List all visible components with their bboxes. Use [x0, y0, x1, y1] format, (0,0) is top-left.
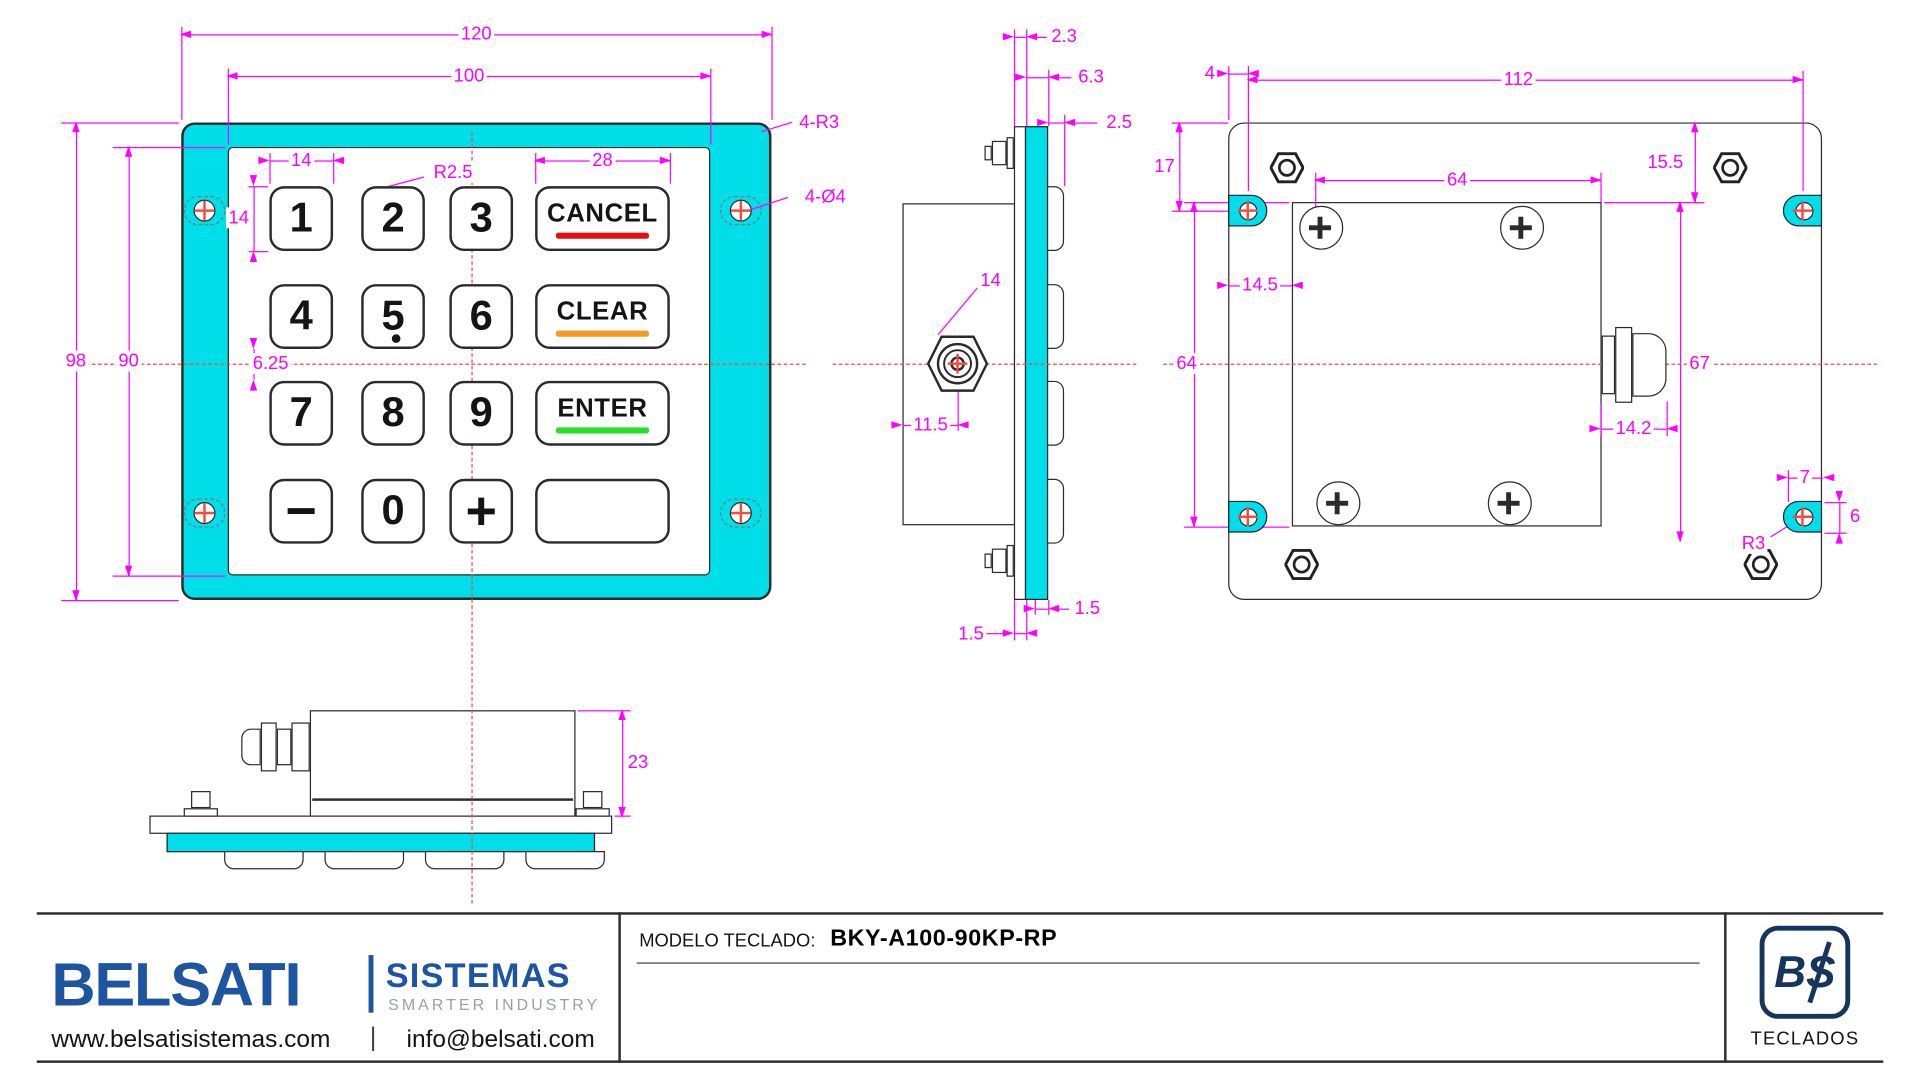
bs-logo-caption: TECLADOS: [1744, 1029, 1866, 1050]
key-3: 3: [449, 186, 513, 251]
tactile-dot: [392, 334, 401, 343]
dim-line: [1014, 633, 1026, 634]
key-label: 9: [470, 389, 493, 437]
gland-centermark: [948, 354, 968, 374]
enclosure-flange-line: [312, 798, 573, 800]
dim-label-key-protrusion: 2.5: [1104, 112, 1134, 133]
dim-label-slot-inset: 4: [1202, 63, 1217, 84]
drawing-canvas: 1 2 3 CANCEL 4 5 6 CLEAR 7 8 9 ENTER − 0…: [0, 0, 1920, 1080]
gland-nut: [1615, 327, 1632, 403]
dim-label-screw-span: 64: [1444, 169, 1469, 190]
dim-label-gland-dia: 14: [978, 270, 1003, 291]
phillips-screw: [1316, 481, 1360, 525]
dim-label-box-top-inset: 15.5: [1645, 152, 1686, 173]
key-clear: CLEAR: [535, 284, 670, 349]
model-label: MODELO TECLADO:: [639, 931, 815, 952]
key-label: 6: [470, 293, 493, 341]
centerline: [67, 364, 805, 365]
bolt-tip: [984, 553, 991, 568]
dim-label-key-radius: R2.5: [431, 162, 475, 183]
dim-label-mount-hole: 4-Ø4: [802, 187, 848, 208]
slot-centermark: [1793, 201, 1813, 221]
key-7: 7: [269, 381, 333, 446]
dim-label-box-height: 64: [1174, 353, 1199, 374]
hex-nut: [1270, 151, 1304, 191]
side-key-profile: [1047, 479, 1064, 544]
phillips-screw: [1488, 481, 1532, 525]
brand-email: info@belsati.com: [407, 1026, 595, 1054]
slot-centermark: [1238, 201, 1258, 221]
drawing-sheet: 1 2 3 CANCEL 4 5 6 CLEAR 7 8 9 ENTER − 0…: [0, 0, 1920, 1080]
ext-line: [1075, 122, 1097, 123]
key-label: 3: [470, 195, 493, 243]
dim-label-gland-offset: 11.5: [911, 414, 950, 435]
ext-line: [1604, 202, 1704, 203]
key-6: 6: [449, 284, 513, 349]
key-label: 2: [381, 195, 404, 243]
bottom-key-tab: [224, 851, 304, 869]
key-label: 7: [290, 389, 313, 437]
phillips-screw: [1500, 206, 1544, 250]
bottom-cable-gland: [241, 720, 312, 774]
dim-label-gland-width: 14.2: [1613, 418, 1654, 439]
dim-label-key-height: 14: [226, 207, 251, 228]
ext-line: [1059, 609, 1069, 610]
model-value: BKY-A100-90KP-RP: [830, 926, 1057, 953]
dim-line: [1179, 122, 1180, 210]
ext-line: [1825, 502, 1847, 503]
enter-underline: [556, 427, 649, 433]
phillips-screw: [1299, 206, 1343, 250]
ext-line: [1600, 404, 1601, 436]
dim-line: [1035, 609, 1048, 610]
gland-ring: [277, 729, 292, 766]
dim-line: [1228, 73, 1248, 74]
bottom-bolt: [184, 787, 218, 816]
dim-line: [1695, 122, 1696, 202]
hole-centermark: [731, 503, 751, 523]
key-label: 4: [290, 293, 313, 341]
bottom-key-tab: [324, 851, 404, 869]
bolt-washer: [576, 808, 610, 817]
key-4: 4: [269, 284, 333, 349]
bottom-plate: [149, 816, 612, 834]
side-key-profile: [1047, 284, 1064, 349]
dim-line: [622, 710, 623, 817]
bottom-bolt: [576, 787, 610, 816]
ext-line: [1802, 71, 1803, 191]
dim-label-key-width: 14: [289, 150, 314, 171]
hex-nut: [1285, 547, 1319, 587]
key-label: CLEAR: [557, 297, 649, 326]
dim-line: [1048, 122, 1064, 123]
dim-label-inner-height: 90: [116, 351, 141, 372]
key-label: 1: [290, 195, 313, 243]
bolt-tip: [984, 146, 991, 161]
titleblock-divider: [618, 912, 620, 1063]
side-bolt: [982, 545, 1014, 577]
dim-label-inner-width: 100: [451, 65, 487, 86]
side-key-profile: [1047, 381, 1064, 446]
hex-nut: [1713, 151, 1747, 191]
clear-underline: [556, 330, 649, 336]
key-label: CANCEL: [547, 199, 658, 228]
side-bolt: [982, 137, 1014, 169]
ext-line: [1788, 470, 1789, 502]
key-label: 8: [381, 389, 404, 437]
bottom-key-tab: [425, 851, 505, 869]
bolt-head: [992, 549, 1007, 573]
brand-website: www.belsatisistemas.com: [51, 1026, 330, 1054]
hole-centermark: [195, 201, 215, 221]
model-underline: [637, 962, 1700, 963]
ext-line: [1014, 600, 1015, 640]
key-8: 8: [361, 381, 425, 446]
dim-line: [1680, 202, 1681, 541]
key-blank: [535, 479, 670, 544]
dim-label-slot-span: 112: [1501, 69, 1535, 90]
dim-line: [1839, 502, 1840, 533]
brand-tagline: SMARTER INDUSTRY: [388, 996, 600, 1014]
gland-body: [291, 722, 309, 771]
hole-centermark: [195, 503, 215, 523]
bolt-head: [191, 791, 211, 808]
dim-label-gland-extent: 67: [1687, 353, 1712, 374]
dim-line: [1014, 37, 1026, 38]
dim-label-stack: 6.3: [1076, 67, 1106, 88]
dim-line: [253, 186, 254, 251]
ext-line: [181, 27, 182, 120]
key-label: ENTER: [557, 394, 647, 423]
dim-label-slot-top-inset: 17: [1152, 156, 1177, 177]
ext-line: [1248, 66, 1249, 191]
key-cancel: CANCEL: [535, 186, 670, 251]
bottom-key-tab: [525, 851, 605, 869]
key-label: +: [465, 481, 496, 542]
brand-sub-text: SISTEMAS: [386, 959, 571, 993]
key-minus: −: [269, 479, 333, 544]
side-key-profile: [1047, 186, 1064, 251]
gland-cap: [241, 729, 261, 766]
ext-line: [269, 153, 270, 184]
bottom-enclosure: [310, 710, 576, 817]
titleblock-divider: [1724, 912, 1726, 1063]
bolt-head: [583, 791, 603, 808]
dim-label-fn-key-width: 28: [590, 150, 615, 171]
ext-line: [1059, 77, 1071, 78]
slot-centermark: [1793, 507, 1813, 527]
bolt-head: [992, 141, 1007, 165]
dim-label-rear-plate: 2.3: [1049, 26, 1079, 47]
dim-label-slot-radius: R3: [1739, 533, 1767, 554]
bolt-washer: [1007, 545, 1014, 577]
key-label: 0: [381, 487, 404, 535]
titleblock-border-top: [37, 912, 1884, 914]
centerline: [1163, 364, 1877, 365]
key-9: 9: [449, 381, 513, 446]
bolt-washer: [184, 808, 218, 817]
contact-separator: |: [370, 1024, 377, 1053]
dim-label-row-offset: 6.25: [250, 353, 291, 374]
key-0: 0: [361, 479, 425, 544]
dim-label-slot-end-offset: 7: [1797, 467, 1812, 488]
key-plus: +: [449, 479, 513, 544]
dim-label-box-left-inset: 14.5: [1240, 275, 1281, 296]
key-1: 1: [269, 186, 333, 251]
ext-line: [771, 27, 772, 120]
ext-line: [710, 69, 711, 145]
dim-label-outer-width: 120: [459, 24, 495, 45]
key-label: −: [285, 481, 316, 542]
brand-logo-divider: [369, 955, 374, 1013]
gland-nut: [261, 722, 277, 771]
hole-centermark: [731, 201, 751, 221]
ext-line: [1035, 600, 1036, 615]
brand-logo-text: BELSATI: [51, 954, 300, 1015]
bottom-front-frame: [167, 833, 596, 853]
dim-label-slot-height: 6: [1848, 506, 1863, 527]
slot-centermark: [1238, 507, 1258, 527]
cancel-underline: [556, 232, 649, 238]
titleblock-border-bottom: [37, 1060, 1884, 1062]
dim-label-gap-bottom: 1.5: [956, 624, 986, 645]
ext-line: [249, 186, 269, 187]
ext-line: [1037, 37, 1047, 38]
dim-label-gap-right: 1.5: [1072, 598, 1102, 619]
gland-flange: [1602, 336, 1615, 395]
ext-line: [228, 69, 229, 145]
key-2: 2: [361, 186, 425, 251]
key-5: 5: [361, 284, 425, 349]
dim-label-outer-height: 98: [63, 351, 88, 372]
key-enter: ENTER: [535, 381, 670, 446]
bs-logo: BS: [1760, 926, 1851, 1019]
key-label: 5: [381, 293, 404, 341]
dim-label-enclosure-depth: 23: [625, 752, 650, 773]
dim-label-frame-radius: 4-R3: [797, 112, 842, 133]
dim-line: [1026, 77, 1048, 78]
gland-cap: [1632, 333, 1666, 397]
bolt-washer: [1007, 137, 1014, 169]
